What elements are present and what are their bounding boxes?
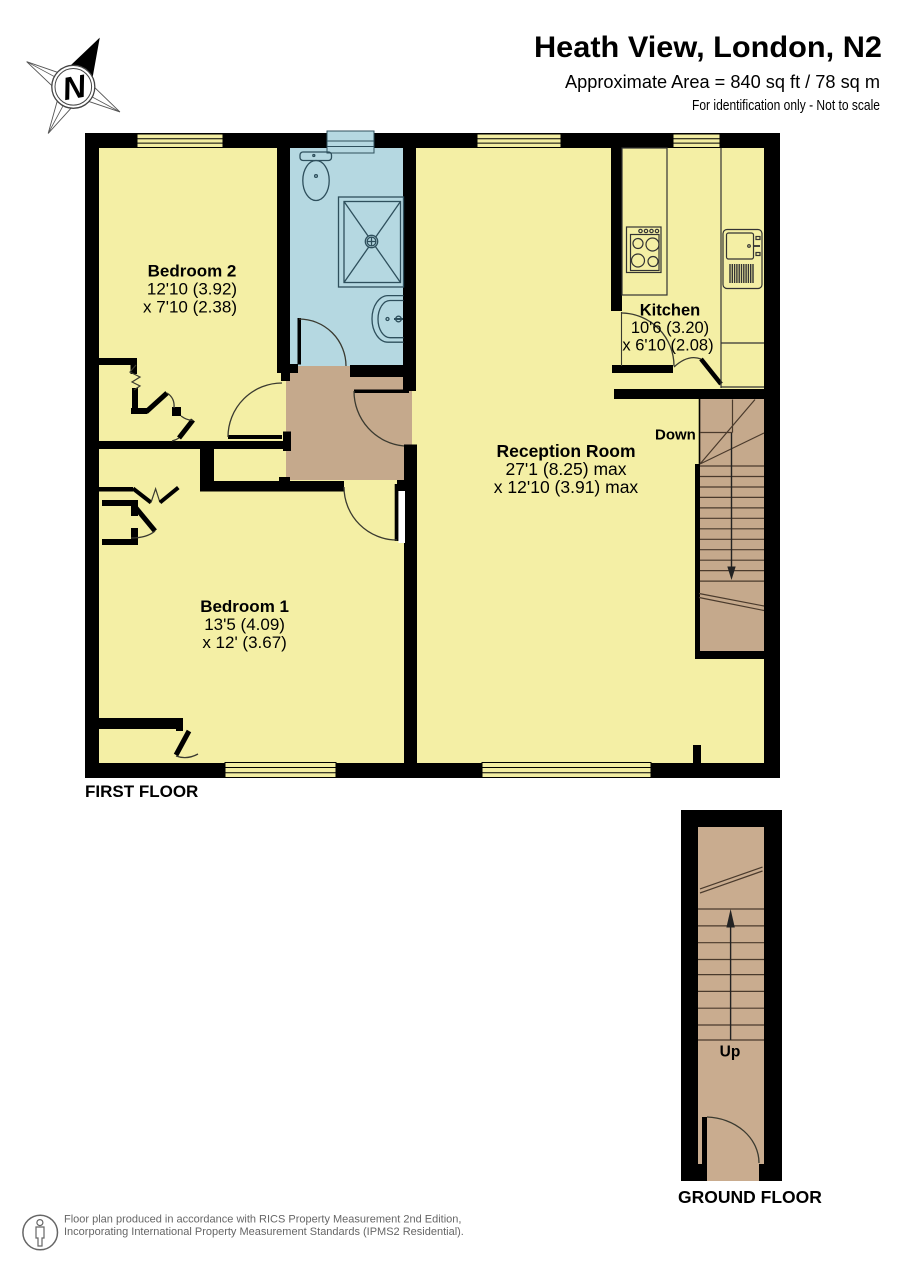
- svg-text:x 7'10 (2.38): x 7'10 (2.38): [143, 298, 237, 317]
- svg-text:Bedroom 1: Bedroom 1: [200, 597, 289, 616]
- svg-text:x 6'10 (2.08): x 6'10 (2.08): [622, 337, 713, 355]
- svg-text:For identification only - Not: For identification only - Not to scale: [692, 98, 880, 114]
- svg-text:Reception Room: Reception Room: [496, 441, 635, 461]
- svg-text:Up: Up: [720, 1044, 741, 1061]
- svg-text:Bedroom 2: Bedroom 2: [148, 262, 237, 281]
- svg-text:FIRST FLOOR: FIRST FLOOR: [85, 782, 198, 801]
- svg-text:Down: Down: [655, 427, 696, 444]
- svg-text:Incorporating International Pr: Incorporating International Property Mea…: [64, 1226, 464, 1238]
- svg-text:27'1 (8.25) max: 27'1 (8.25) max: [505, 459, 626, 479]
- svg-text:13'5 (4.09): 13'5 (4.09): [204, 615, 285, 634]
- svg-text:Approximate Area = 840 sq ft /: Approximate Area = 840 sq ft / 78 sq m: [565, 71, 880, 92]
- svg-text:x 12' (3.67): x 12' (3.67): [202, 633, 287, 652]
- svg-text:x 12'10 (3.91) max: x 12'10 (3.91) max: [494, 477, 639, 497]
- svg-text:12'10 (3.92): 12'10 (3.92): [147, 280, 237, 299]
- svg-text:Heath View, London, N2: Heath View, London, N2: [534, 31, 882, 64]
- svg-text:Floor plan produced in accorda: Floor plan produced in accordance with R…: [64, 1214, 461, 1226]
- svg-text:10'6 (3.20): 10'6 (3.20): [631, 319, 709, 337]
- svg-text:Kitchen: Kitchen: [640, 302, 701, 320]
- svg-text:GROUND FLOOR: GROUND FLOOR: [678, 1187, 822, 1207]
